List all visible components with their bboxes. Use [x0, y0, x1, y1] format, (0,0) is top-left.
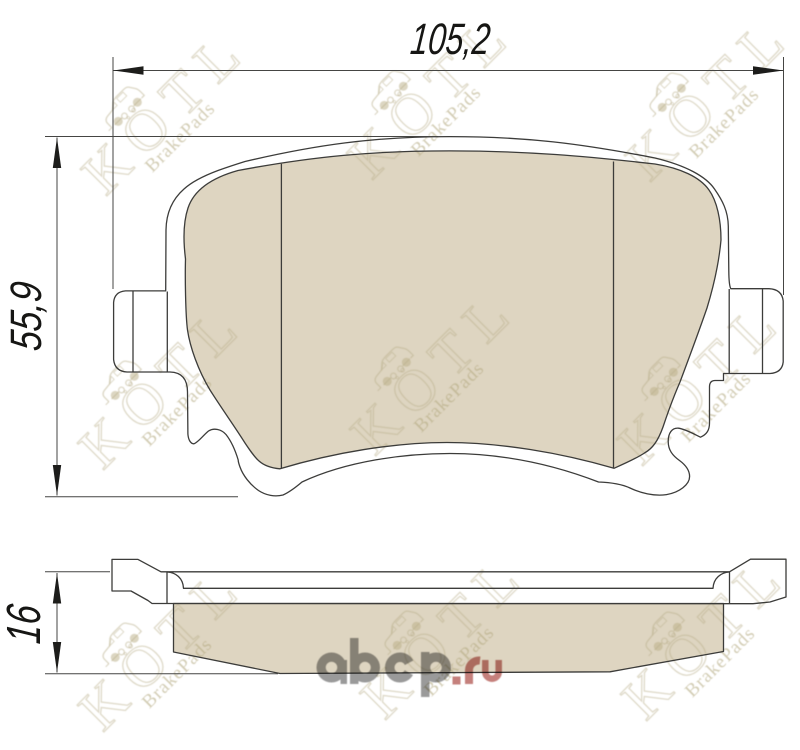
svg-text:105,2: 105,2: [408, 15, 492, 64]
svg-text:16: 16: [0, 601, 50, 645]
svg-text:55,9: 55,9: [2, 279, 50, 353]
